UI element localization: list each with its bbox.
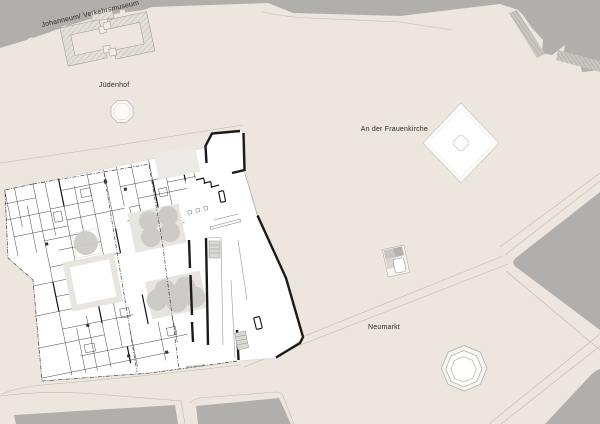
neumarkt-fountain	[441, 346, 487, 392]
juedenhof-fountain	[111, 100, 133, 122]
juedenhof-label: Jüdenhof	[99, 82, 129, 89]
map-canvas: Teilgrundstück Johanneum/ Verkehrsmuseum…	[0, 0, 600, 424]
neumarkt-label: Neumarkt	[368, 324, 400, 331]
frauenkirche-label: An der Frauenkirche	[361, 126, 428, 133]
site-plan-map: Teilgrundstück Johanneum/ Verkehrsmuseum…	[0, 0, 600, 424]
